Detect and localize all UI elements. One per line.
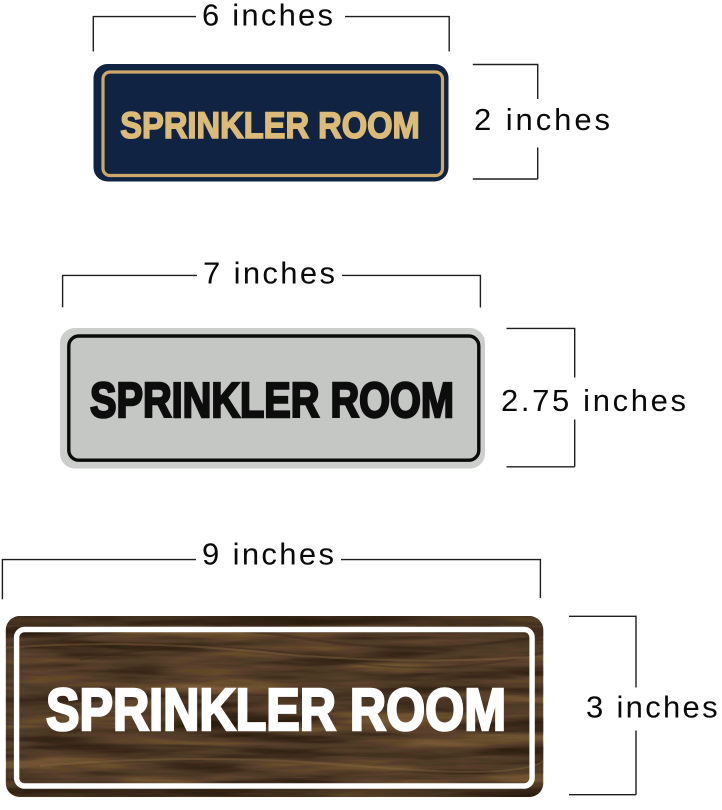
svg-text:7 inches: 7 inches — [203, 256, 335, 291]
svg-text:9 inches: 9 inches — [202, 537, 334, 572]
svg-text:2 inches: 2 inches — [474, 102, 610, 137]
svg-text:SPRINKLER ROOM: SPRINKLER ROOM — [120, 104, 420, 146]
svg-text:6 inches: 6 inches — [202, 0, 333, 33]
svg-text:SPRINKLER ROOM: SPRINKLER ROOM — [46, 677, 506, 743]
svg-text:2.75 inches: 2.75 inches — [501, 383, 686, 418]
svg-text:SPRINKLER ROOM: SPRINKLER ROOM — [90, 374, 454, 428]
svg-text:3 inches: 3 inches — [586, 690, 718, 725]
